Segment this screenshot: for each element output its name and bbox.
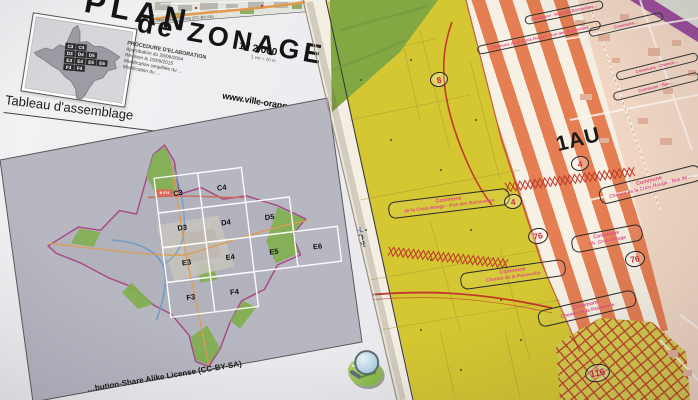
grid-cell-label: E6 bbox=[99, 61, 105, 67]
openstreetmap-logo bbox=[344, 348, 392, 392]
grid-cell-label: F3 bbox=[186, 292, 196, 302]
grid-cell-label: D4 bbox=[78, 52, 85, 58]
grid-cell-label: C3 bbox=[67, 44, 74, 50]
grid-cell-label: D5 bbox=[89, 53, 96, 59]
grid-cell-label: E5 bbox=[269, 247, 279, 257]
grid-cell-label: E3 bbox=[181, 257, 191, 267]
grid-cell-label: C3 bbox=[173, 188, 184, 198]
grid-cell-label: D3 bbox=[177, 223, 188, 233]
grid-cell-label: F3 bbox=[66, 65, 72, 70]
grid-cell-label: F4 bbox=[77, 66, 83, 71]
grid-cell-label: E3 bbox=[66, 58, 72, 64]
grid-cell-label: C4 bbox=[78, 45, 85, 51]
grid-cell-label: E4 bbox=[77, 59, 83, 65]
grid-cell-label: D5 bbox=[264, 212, 275, 222]
assemblage-map-panel: N 974 C3 C4 D3 D4 D5 bbox=[0, 90, 370, 400]
road-badge-n974: N 974 bbox=[160, 191, 171, 195]
grid-cell-label: E5 bbox=[88, 60, 94, 66]
grid-cell-label: D3 bbox=[67, 51, 74, 57]
photo-of-zoning-plan: 1AU Commune de la Croix-Rouge - Rue des … bbox=[0, 0, 698, 400]
grid-cell-label: E6 bbox=[312, 241, 322, 251]
